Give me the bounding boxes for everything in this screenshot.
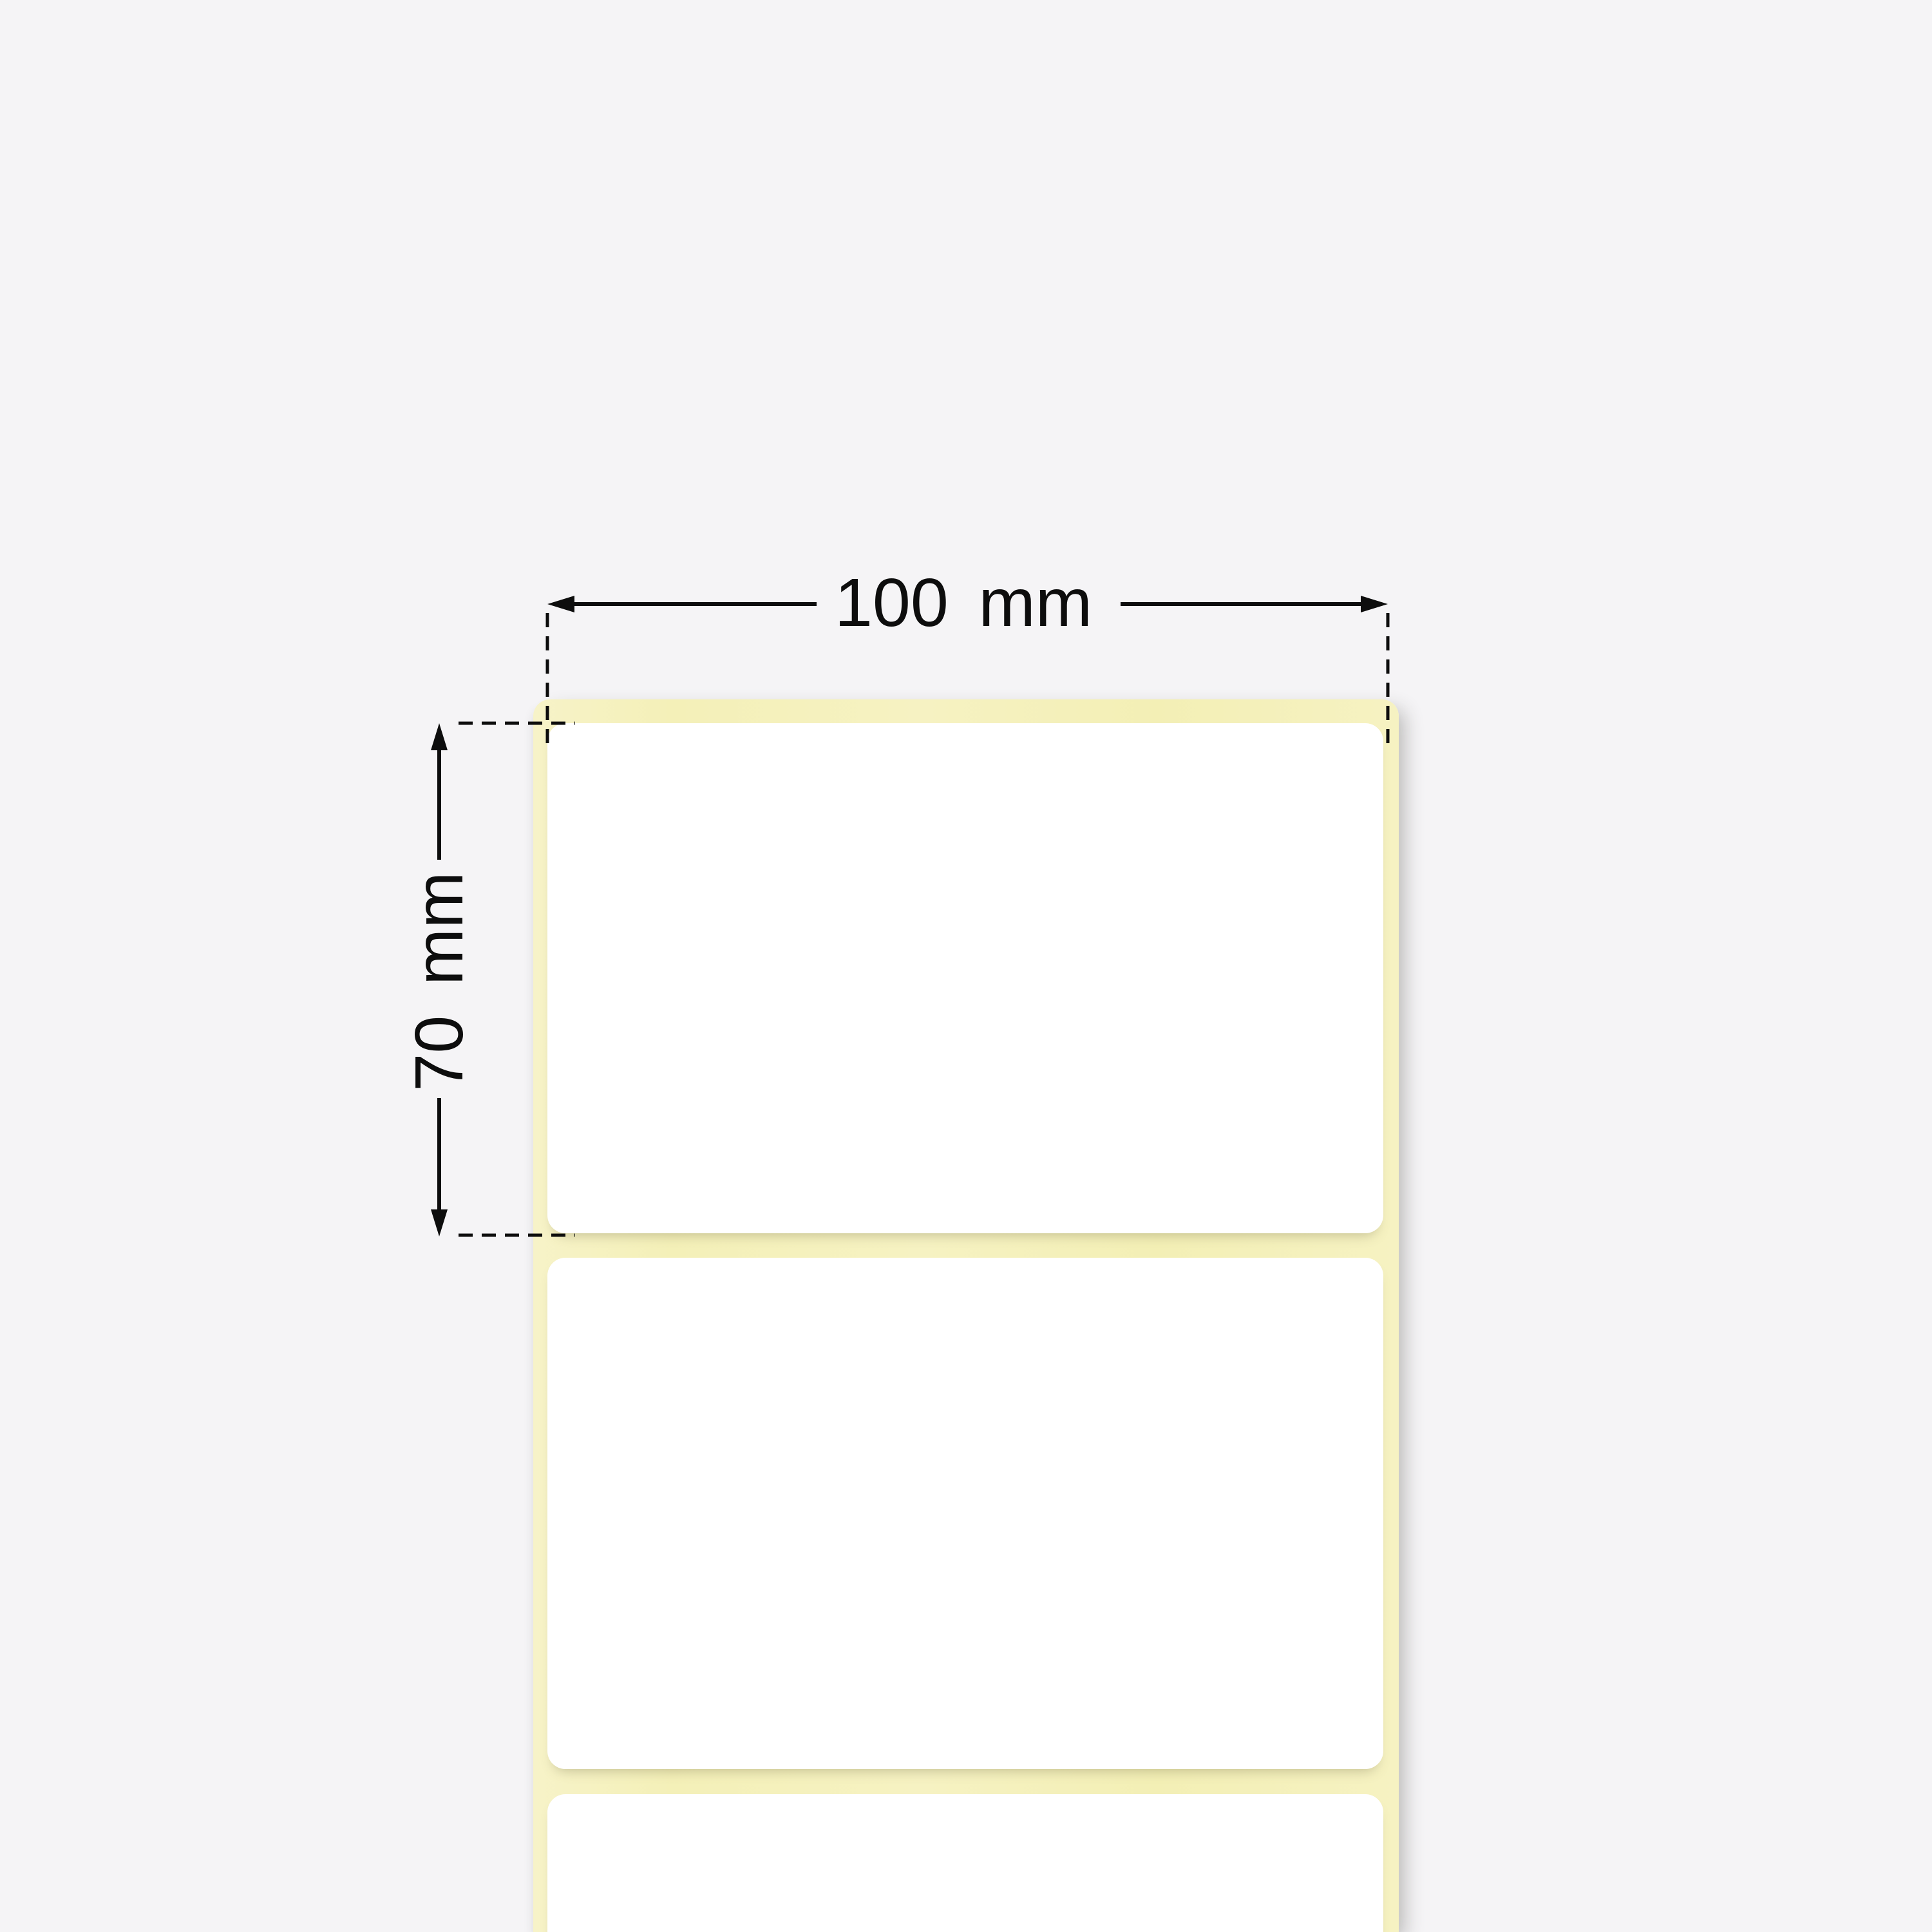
label-2 (547, 1258, 1383, 1769)
width-unit: mm (978, 569, 1092, 637)
label-roll-illustration: 100mm 70mm (0, 0, 1932, 1932)
width-arrow-left-icon (547, 596, 574, 612)
height-arrow-up-icon (431, 723, 448, 750)
height-dimension-label: 70mm (405, 871, 473, 1091)
label-3 (547, 1794, 1383, 1932)
width-dimension-label: 100mm (835, 569, 1092, 637)
width-value: 100 (835, 569, 949, 637)
height-arrow-down-icon (431, 1209, 448, 1236)
width-arrow-right-icon (1361, 596, 1388, 612)
label-1 (547, 723, 1383, 1233)
height-unit: mm (405, 871, 473, 985)
height-value: 70 (405, 1016, 473, 1092)
